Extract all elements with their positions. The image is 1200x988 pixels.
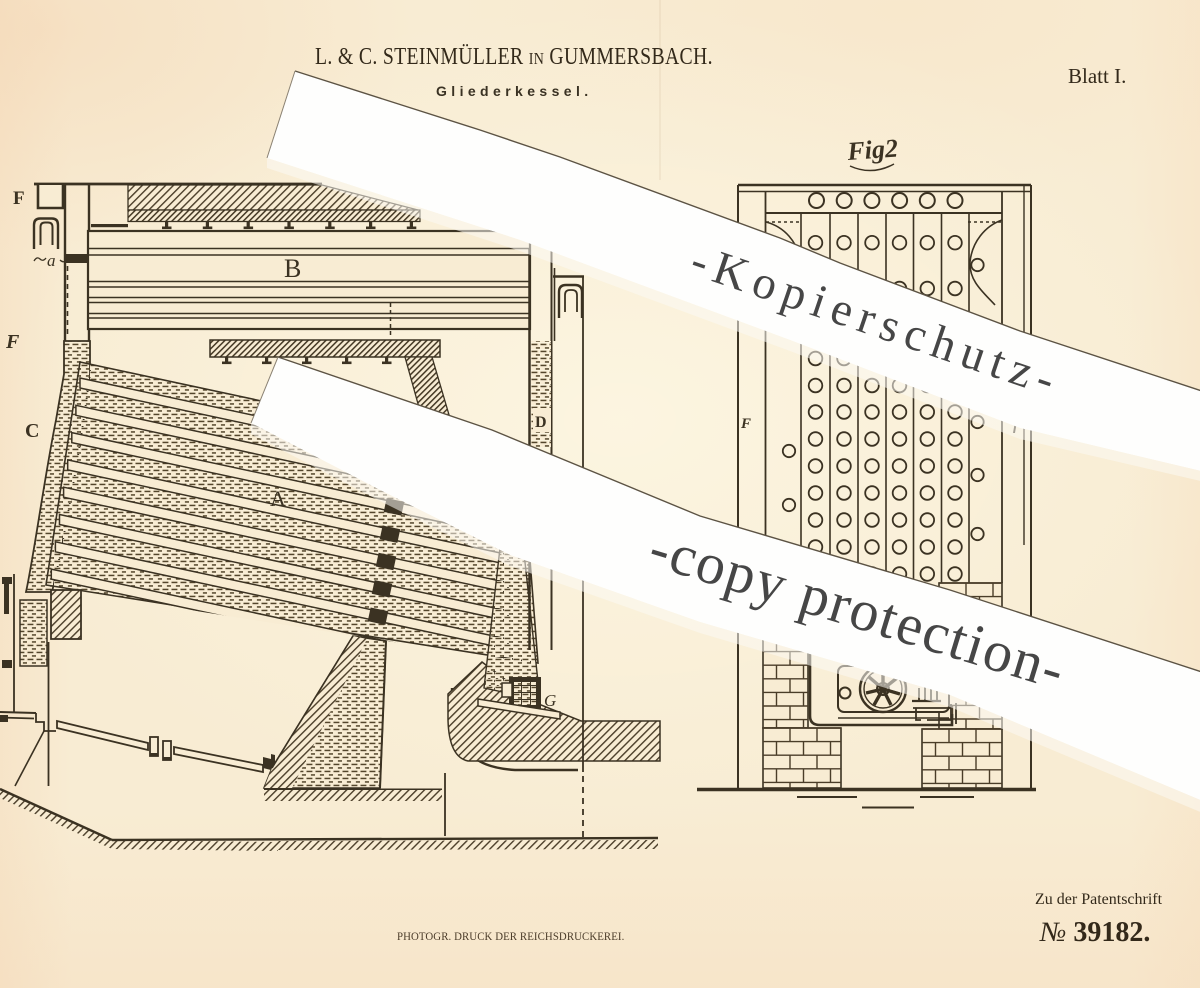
svg-text:A: A [270,486,286,511]
svg-text:B: B [284,254,301,283]
svg-text:G: G [544,691,556,710]
svg-text:F: F [740,416,751,432]
svg-text:D: D [535,414,547,431]
svg-text:C: C [25,420,39,442]
svg-text:a: a [47,251,56,270]
svg-text:F: F [13,188,25,209]
svg-text:Fig2: Fig2 [845,134,898,167]
svg-text:F: F [5,331,20,353]
